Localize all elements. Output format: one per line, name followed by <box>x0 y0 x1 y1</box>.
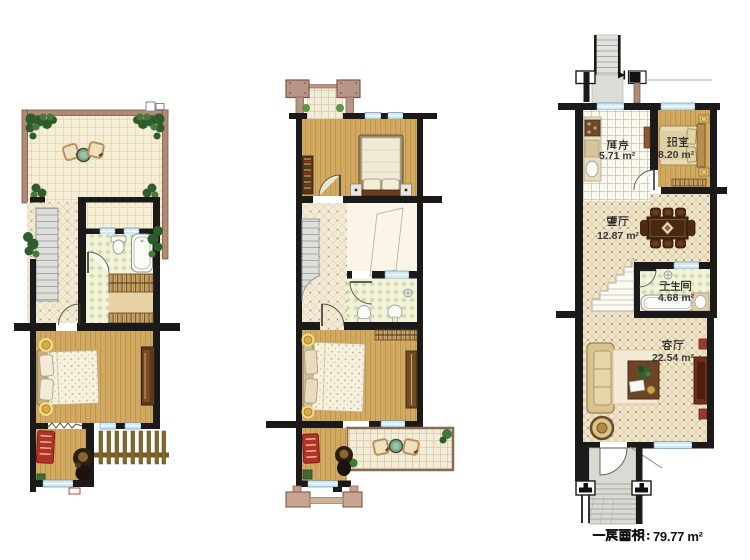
svg-text:79.77 m²: 79.77 m² <box>653 529 704 544</box>
svg-text:22.54 m²: 22.54 m² <box>652 352 695 364</box>
svg-text:12.87 m²: 12.87 m² <box>597 230 640 242</box>
svg-text:5.71 m²: 5.71 m² <box>599 150 636 162</box>
svg-text:4.68 m²: 4.68 m² <box>658 292 695 304</box>
svg-text:8.20 m²: 8.20 m² <box>658 149 695 161</box>
